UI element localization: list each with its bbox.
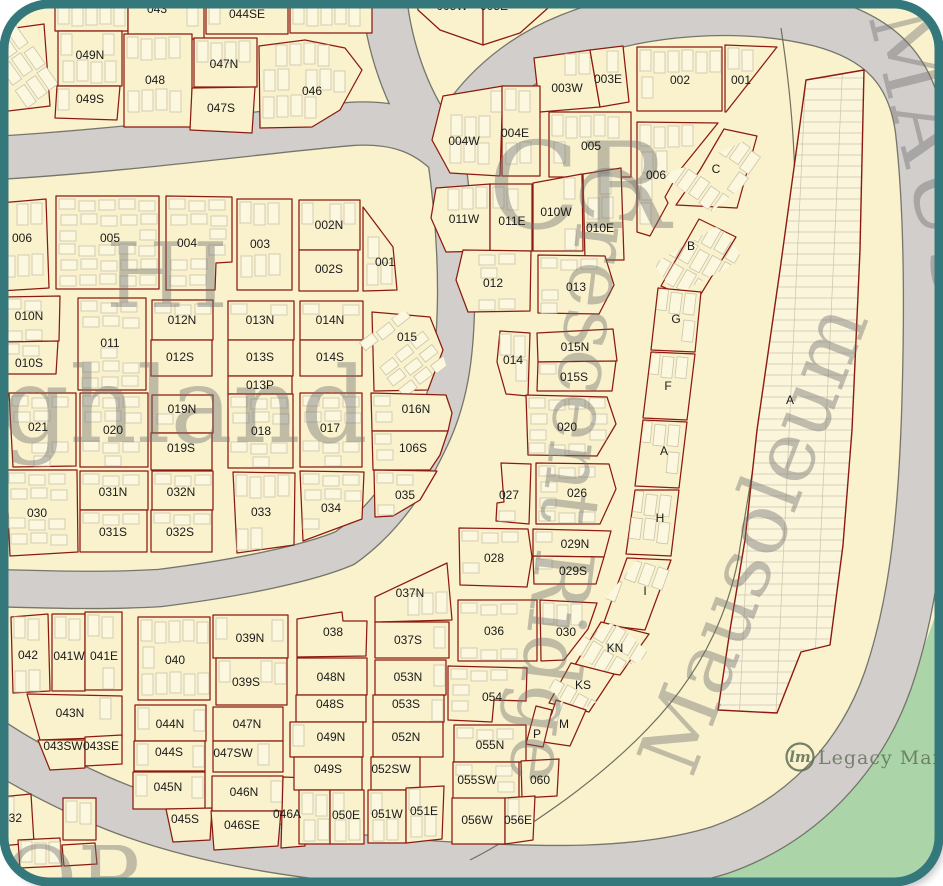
burial-plot <box>375 434 391 444</box>
burial-plot <box>169 199 185 209</box>
section-label-I: I <box>643 584 646 598</box>
burial-plot <box>271 781 282 802</box>
section-label-047N: 047N <box>210 57 239 71</box>
section-label-014S: 014S <box>316 350 344 364</box>
section-label-045S: 045S <box>171 812 199 826</box>
burial-plot <box>250 477 261 498</box>
burial-plot <box>276 45 287 66</box>
section-label-014N: 014N <box>316 313 345 327</box>
burial-plot <box>66 801 77 822</box>
burial-plot <box>51 490 67 500</box>
burial-plot <box>58 89 69 110</box>
burial-plot <box>451 669 467 679</box>
burial-plot <box>241 256 252 277</box>
section-label-037S: 037S <box>394 633 422 647</box>
section-label-031S: 031S <box>99 525 127 539</box>
burial-plot <box>278 69 289 90</box>
burial-plot <box>436 592 447 613</box>
section-label-026: 026 <box>567 486 587 500</box>
section-label-037N: 037N <box>396 586 425 600</box>
legacy-mark-monogram: lm <box>789 748 811 766</box>
burial-plot <box>643 518 656 540</box>
burial-plot <box>29 475 45 485</box>
burial-plot <box>325 489 341 499</box>
burial-plot <box>302 203 313 224</box>
burial-plot <box>17 204 28 225</box>
burial-plot <box>303 519 319 529</box>
section-label-010E: 010E <box>586 221 614 235</box>
burial-plot <box>696 52 707 73</box>
burial-plot <box>482 533 498 543</box>
burial-plot <box>499 299 515 309</box>
burial-plot <box>31 488 47 498</box>
section-label-056E: 056E <box>504 813 532 827</box>
section-label-049N: 049N <box>317 730 346 744</box>
burial-plot <box>189 201 205 211</box>
burial-plot <box>290 44 301 65</box>
burial-plot <box>192 777 203 798</box>
burial-plot <box>291 95 302 116</box>
burial-plot <box>193 746 204 767</box>
section-label-106S: 106S <box>399 441 427 455</box>
section-label-006: 006 <box>646 168 666 182</box>
burial-plot <box>141 39 152 60</box>
burial-plot <box>264 476 275 497</box>
burial-plot <box>387 819 398 840</box>
burial-plot <box>138 708 149 729</box>
burial-plot <box>194 710 205 731</box>
burial-plot <box>60 231 76 241</box>
burial-plot <box>667 425 680 447</box>
burial-plot <box>303 474 319 484</box>
burial-plot <box>318 45 329 66</box>
burial-plot <box>728 48 739 69</box>
burial-plot <box>462 188 473 209</box>
burial-plot <box>83 474 99 484</box>
burial-plot <box>11 534 27 544</box>
burial-plot <box>377 473 393 483</box>
section-label-012: 012 <box>483 276 503 290</box>
burial-plot <box>191 214 207 224</box>
section-label-055SW: 055SW <box>457 773 497 787</box>
burial-plot <box>88 615 99 636</box>
burial-plot <box>81 259 97 269</box>
burial-plot <box>11 489 27 499</box>
burial-plot <box>461 648 477 658</box>
section-label-052N: 052N <box>392 730 421 744</box>
burial-plot <box>642 77 653 98</box>
burial-plot <box>251 528 262 549</box>
burial-plot <box>683 293 696 315</box>
burial-plot <box>61 34 72 55</box>
burial-plot <box>142 90 153 111</box>
burial-plot <box>607 51 618 72</box>
burial-plot <box>236 475 247 496</box>
burial-plot <box>31 203 42 224</box>
section-label-032S: 032S <box>166 525 194 539</box>
burial-plot <box>127 37 138 58</box>
burial-plot <box>169 621 180 642</box>
burial-plot <box>343 305 359 315</box>
burial-plot <box>102 617 113 638</box>
burial-plot <box>240 202 251 223</box>
section-label-015: 015 <box>397 330 417 344</box>
section-label-043SE: 043SE <box>83 739 119 753</box>
burial-plot <box>457 728 473 738</box>
burial-plot <box>305 490 321 500</box>
burial-plot <box>156 89 167 110</box>
section-label-019S: 019S <box>167 441 195 455</box>
burial-plot <box>318 819 329 840</box>
section-label-015N: 015N <box>561 340 590 354</box>
section-label-003E: 003E <box>594 72 622 86</box>
legacy-mark-logo: lmLegacy Mark <box>787 744 943 771</box>
burial-plot <box>345 491 361 501</box>
burial-plot <box>128 91 139 112</box>
burial-plot <box>198 673 209 694</box>
burial-plot <box>141 214 157 224</box>
burial-plot <box>28 619 39 640</box>
burial-plot <box>174 515 190 525</box>
burial-plot <box>142 674 153 695</box>
burial-plot <box>481 650 497 660</box>
section-label-044N: 044N <box>156 717 185 731</box>
burial-plot <box>81 214 97 224</box>
burial-plot <box>293 725 304 746</box>
burial-plot <box>14 617 25 638</box>
section-label-056W: 056W <box>461 813 493 827</box>
section-label-mausoleum-A: A <box>786 393 794 407</box>
section-label-013N: 013N <box>246 313 275 327</box>
section-H[interactable] <box>626 490 679 556</box>
burial-plot <box>258 744 269 765</box>
section-label-004W: 004W <box>448 134 480 148</box>
section-label-015S: 015S <box>560 370 588 384</box>
burial-plot <box>183 620 194 641</box>
burial-plot <box>304 43 315 64</box>
burial-plot <box>519 91 530 112</box>
section-label-G: G <box>671 312 680 326</box>
burial-plot <box>666 452 679 474</box>
section-label-029S: 029S <box>559 564 587 578</box>
section-label-046: 046 <box>302 84 322 98</box>
burial-plot <box>197 622 208 643</box>
section-label-014: 014 <box>503 353 523 367</box>
section-label-002: 002 <box>670 73 690 87</box>
section-label-P: P <box>533 727 541 741</box>
burial-plot <box>155 474 171 484</box>
burial-plot <box>682 50 693 71</box>
section-label-038: 038 <box>323 625 343 639</box>
burial-plot <box>103 34 114 55</box>
burial-plot <box>154 513 170 523</box>
section-label-033: 033 <box>251 505 271 519</box>
section-label-039S: 039S <box>232 675 260 689</box>
burial-plot <box>80 275 96 285</box>
section-label-027: 027 <box>499 488 519 502</box>
burial-plot <box>29 520 45 530</box>
burial-plot <box>81 301 97 311</box>
burial-plot <box>275 663 286 684</box>
burial-plot <box>304 820 315 841</box>
burial-plot <box>498 782 514 792</box>
burial-plot <box>411 816 422 837</box>
burial-plot <box>629 517 642 539</box>
burial-plot <box>374 396 390 406</box>
burial-plot <box>105 61 116 82</box>
burial-plot <box>268 203 279 224</box>
burial-plot <box>32 254 43 275</box>
section-label-031N: 031N <box>99 485 128 499</box>
section-label-016N: 016N <box>402 402 431 416</box>
burial-plot <box>323 476 339 486</box>
section-label-M: M <box>559 717 569 731</box>
burial-plot <box>462 531 478 541</box>
burial-plot <box>123 475 139 485</box>
burial-plot <box>83 317 99 327</box>
section-label-005: 005 <box>100 231 120 245</box>
section-label-045N: 045N <box>154 780 183 794</box>
section-label-010W: 010W <box>540 205 572 219</box>
burial-plot <box>209 200 225 210</box>
section-label-011W: 011W <box>449 212 480 226</box>
burial-plot <box>471 671 487 681</box>
burial-plot <box>653 424 666 446</box>
section-label-043N: 043N <box>56 706 85 720</box>
burial-plot <box>49 474 65 484</box>
burial-plot <box>55 617 66 638</box>
burial-plot <box>425 815 436 836</box>
section-label-046SE: 046SE <box>224 818 260 832</box>
legacy-mark-wordmark: Legacy Mark <box>818 747 943 769</box>
section-label-047N: 047N <box>233 717 262 731</box>
burial-plot <box>184 674 195 695</box>
burial-plot <box>170 672 181 693</box>
section-label-052SW: 052SW <box>371 762 411 776</box>
burial-plot <box>99 200 115 210</box>
burial-plot <box>397 475 413 485</box>
burial-plot <box>79 201 95 211</box>
section-label-A: A <box>660 444 668 458</box>
burial-plot <box>461 603 477 613</box>
section-label-030: 030 <box>27 506 47 520</box>
burial-plot <box>675 357 688 379</box>
burial-plot <box>434 627 445 648</box>
burial-plot <box>79 246 95 256</box>
burial-plot <box>373 820 384 841</box>
burial-plot <box>195 475 211 485</box>
section-label-010N: 010N <box>15 309 44 323</box>
burial-plot <box>219 661 230 682</box>
cemetery-map[interactable]: HIghlandCRCrescent RidgeMausoleumMAUSOLE… <box>0 0 943 886</box>
section-label-C: C <box>712 162 721 176</box>
burial-plot <box>499 511 515 521</box>
burial-plot <box>334 71 345 92</box>
burial-plot <box>63 61 74 82</box>
burial-plot <box>277 96 288 117</box>
burial-plot <box>264 70 275 91</box>
section-label-050E: 050E <box>332 808 360 822</box>
burial-plot <box>479 300 495 310</box>
burial-plot <box>141 620 152 641</box>
burial-plot <box>103 668 114 689</box>
burial-plot <box>103 515 119 525</box>
section-label-049S: 049S <box>314 762 342 776</box>
section-label-046A: 046A <box>273 807 301 821</box>
section-label-020: 020 <box>557 420 577 434</box>
burial-plot <box>710 51 721 72</box>
burial-plot <box>376 412 392 422</box>
burial-plot <box>59 244 75 254</box>
section-label-011: 011 <box>100 336 119 350</box>
burial-plot <box>335 820 346 841</box>
burial-plot <box>91 62 102 83</box>
burial-plot <box>194 514 210 524</box>
burial-plot <box>77 60 88 81</box>
section-label-003: 003 <box>250 237 270 251</box>
section-label-019N: 019N <box>168 402 197 416</box>
burial-plot <box>302 793 313 814</box>
section-label-042: 042 <box>18 648 38 662</box>
section-label-005: 005 <box>581 139 601 153</box>
section-label-054: 054 <box>482 690 502 704</box>
section-label-055N: 055N <box>476 738 505 752</box>
section-label-B: B <box>687 239 695 253</box>
burial-plot <box>344 203 355 224</box>
section-label-002S: 002S <box>315 262 343 276</box>
section-label-060: 060 <box>530 773 550 787</box>
burial-plot <box>255 255 266 276</box>
burial-plot <box>668 51 679 72</box>
burial-plot <box>156 673 167 694</box>
burial-plot <box>448 189 459 210</box>
burial-plot <box>278 475 289 496</box>
burial-plot <box>15 671 26 692</box>
section-label-F: F <box>664 379 671 393</box>
section-label-034: 034 <box>321 501 341 515</box>
burial-plot <box>272 620 283 641</box>
burial-plot <box>432 700 443 721</box>
section-label-051W: 051W <box>371 807 403 821</box>
burial-plot <box>491 91 502 112</box>
burial-plot <box>481 605 497 615</box>
map-canvas[interactable]: HIghlandCRCrescent RidgeMausoleumMAUSOLE… <box>0 0 943 886</box>
section-label-004E: 004E <box>501 126 529 140</box>
burial-plot <box>378 505 394 515</box>
burial-plot <box>60 276 76 286</box>
burial-plot <box>500 334 511 355</box>
section-label-053S: 053S <box>392 697 420 711</box>
burial-plot <box>579 53 590 74</box>
section-label-030: 030 <box>556 625 576 639</box>
burial-plot <box>59 199 75 209</box>
section-label-013S: 013S <box>246 350 274 364</box>
burial-plot <box>69 619 80 640</box>
burial-plot <box>349 819 360 840</box>
section-label-010S: 010S <box>15 356 43 370</box>
burial-plot <box>505 89 516 110</box>
burial-plot <box>640 50 651 71</box>
section-label-041E: 041E <box>90 649 118 663</box>
section-label-020: 020 <box>103 423 123 437</box>
section-label-003W: 003W <box>551 81 583 95</box>
burial-plot <box>155 622 166 643</box>
section-label-KN: KN <box>607 641 624 655</box>
section-label-044S: 044S <box>155 745 183 759</box>
burial-plot <box>502 532 518 542</box>
section-label-048N: 048N <box>317 670 346 684</box>
burial-plot <box>237 529 248 550</box>
section-label-036: 036 <box>484 624 504 638</box>
burial-plot <box>51 535 67 545</box>
burial-plot <box>123 514 139 524</box>
burial-plot <box>9 473 25 483</box>
section-label-013: 013 <box>566 280 586 294</box>
cemetery-map-stage: HIghlandCRCrescent RidgeMausoleumMAUSOLE… <box>0 0 943 886</box>
section-label-KS: KS <box>575 678 591 692</box>
section-label-017: 017 <box>320 421 340 435</box>
section-label-001: 001 <box>731 73 751 87</box>
burial-plot <box>682 320 695 342</box>
section-label-048: 048 <box>145 73 165 87</box>
burial-plot <box>80 803 91 824</box>
burial-plot <box>316 795 327 816</box>
burial-plot <box>261 661 272 682</box>
burial-plot <box>565 54 576 75</box>
section-label-035: 035 <box>395 488 415 502</box>
burial-plot <box>29 670 40 691</box>
section-label-011E: 011E <box>498 214 525 228</box>
section-label-028: 028 <box>484 551 504 565</box>
burial-plot <box>451 115 462 136</box>
burial-plot <box>657 522 670 544</box>
burial-plot <box>26 330 42 340</box>
burial-plot <box>169 37 180 58</box>
burial-plot <box>31 533 47 543</box>
section-label-032N: 032N <box>167 485 196 499</box>
burial-plot <box>305 97 316 118</box>
burial-plot <box>269 254 280 275</box>
section[interactable] <box>299 790 330 844</box>
section-label-002N: 002N <box>315 218 344 232</box>
section-label-001: 001 <box>375 255 395 269</box>
section-label-029N: 029N <box>561 537 590 551</box>
section-label-040: 040 <box>165 653 185 667</box>
section-label-012S: 012S <box>166 350 194 364</box>
burial-plot <box>216 618 227 639</box>
section-label-047S: 047S <box>207 101 235 115</box>
burial-plot <box>83 513 99 523</box>
section-label-051E: 051E <box>410 804 438 818</box>
burial-plot <box>119 199 135 209</box>
burial-plot <box>452 701 468 711</box>
burial-plot <box>9 518 25 528</box>
section-label-046N: 046N <box>230 785 259 799</box>
section-label-013P: 013P <box>246 378 274 392</box>
burial-plot <box>100 698 111 719</box>
burial-plot <box>139 201 155 211</box>
burial-plot <box>682 125 693 146</box>
burial-plot <box>343 475 359 485</box>
burial-plot <box>476 187 487 208</box>
section-label-039N: 039N <box>236 631 265 645</box>
section-label-048S: 048S <box>316 697 344 711</box>
section-label-004: 004 <box>177 236 197 250</box>
burial-plot <box>661 356 674 378</box>
section-label-053N: 053N <box>394 670 423 684</box>
burial-plot <box>453 685 469 695</box>
burial-plot <box>137 744 148 765</box>
